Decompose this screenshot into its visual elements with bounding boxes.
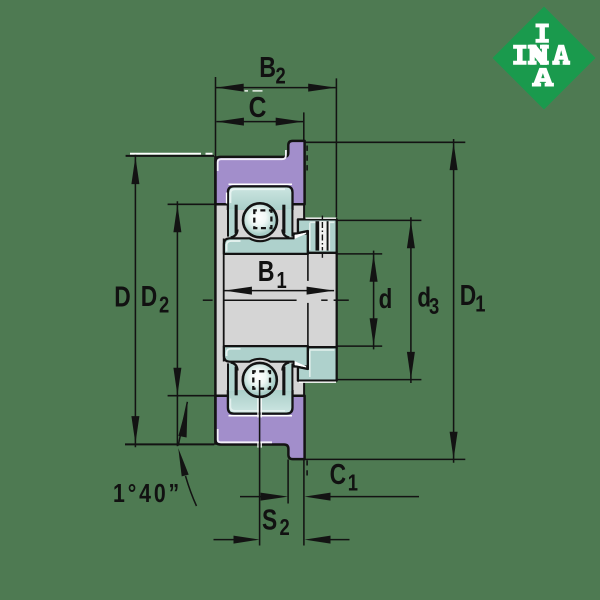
- svg-text:2: 2: [159, 293, 169, 318]
- svg-text:1: 1: [348, 471, 358, 496]
- svg-text:C: C: [249, 91, 267, 123]
- svg-text:B: B: [259, 51, 276, 84]
- svg-text:3: 3: [429, 294, 439, 319]
- svg-text:2: 2: [276, 64, 286, 89]
- svg-text:1: 1: [475, 291, 485, 316]
- svg-text:B: B: [258, 254, 275, 287]
- svg-text:D: D: [141, 282, 157, 313]
- svg-text:d: d: [379, 284, 393, 315]
- svg-text:1°40”: 1°40”: [113, 479, 182, 509]
- svg-text:D: D: [460, 281, 476, 312]
- svg-text:D: D: [114, 282, 130, 313]
- svg-text:C: C: [330, 460, 346, 491]
- svg-text:1: 1: [277, 268, 287, 293]
- svg-text:2: 2: [280, 515, 290, 540]
- svg-text:S: S: [262, 505, 277, 536]
